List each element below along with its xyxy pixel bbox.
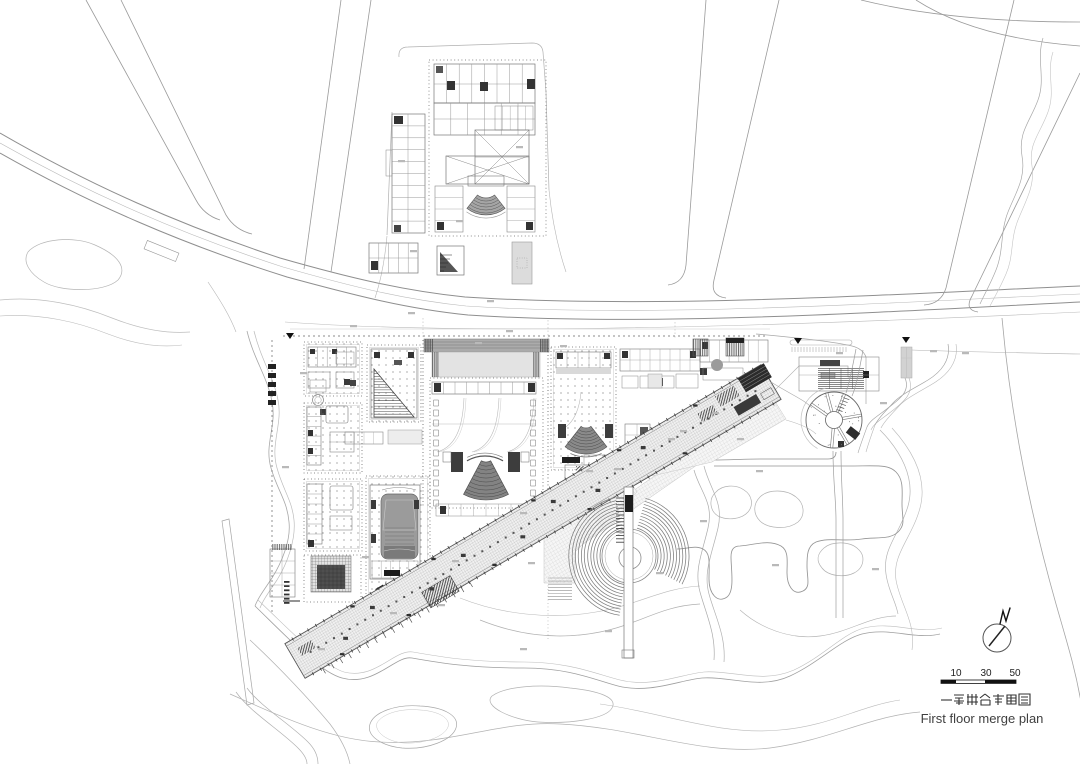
svg-text:10: 10 — [950, 668, 962, 679]
svg-text:First floor merge plan: First floor merge plan — [921, 711, 1044, 726]
svg-text:30: 30 — [980, 668, 992, 679]
svg-text:50: 50 — [1009, 668, 1021, 679]
